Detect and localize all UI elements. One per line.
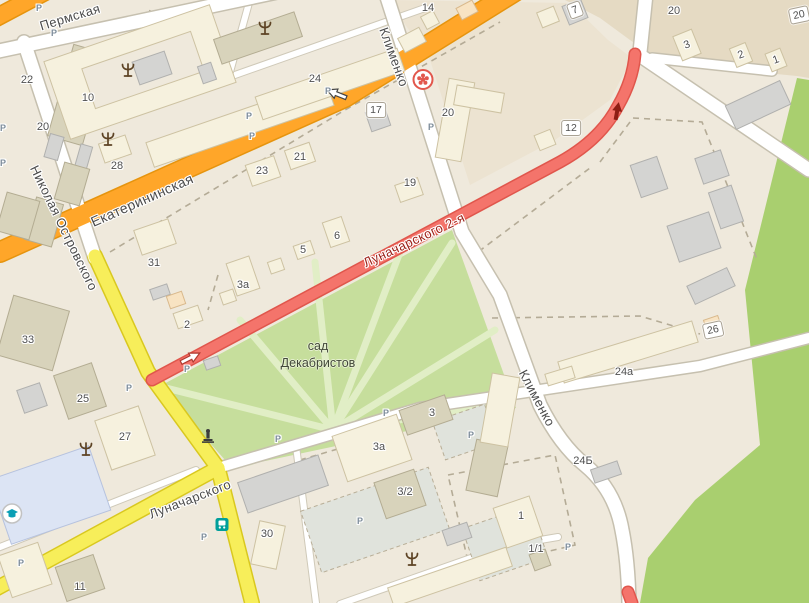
pharmacy-icon[interactable] <box>412 69 434 96</box>
building <box>395 178 424 203</box>
building <box>251 521 286 569</box>
building <box>630 156 668 197</box>
building <box>95 406 155 470</box>
monument-icon[interactable] <box>201 428 215 449</box>
building <box>322 216 349 247</box>
tree-icon[interactable] <box>120 62 136 83</box>
tree-icon[interactable] <box>404 551 420 572</box>
address-badge[interactable]: 12 <box>561 120 581 136</box>
address-badge[interactable]: 17 <box>366 102 386 118</box>
education-icon[interactable] <box>1 503 23 530</box>
tree-icon[interactable] <box>100 131 116 152</box>
park-name-label: сад Декабристов <box>281 338 356 372</box>
map-base-layer <box>0 0 809 603</box>
building <box>245 156 281 187</box>
building <box>173 305 203 329</box>
building <box>687 268 735 305</box>
tree-icon[interactable] <box>257 20 273 41</box>
building <box>293 240 315 259</box>
building <box>134 219 177 255</box>
map-canvas[interactable]: сад Декабристов ПермскаяНиколая Островск… <box>0 0 809 603</box>
building <box>267 258 284 274</box>
building <box>284 142 315 169</box>
building <box>725 81 790 130</box>
building <box>17 383 48 414</box>
building <box>219 289 236 305</box>
building <box>667 212 721 262</box>
building <box>708 185 743 229</box>
building <box>0 295 69 371</box>
tree-icon[interactable] <box>78 441 94 462</box>
building <box>695 150 729 184</box>
bus-stop-icon[interactable] <box>216 518 229 536</box>
building <box>54 363 107 420</box>
